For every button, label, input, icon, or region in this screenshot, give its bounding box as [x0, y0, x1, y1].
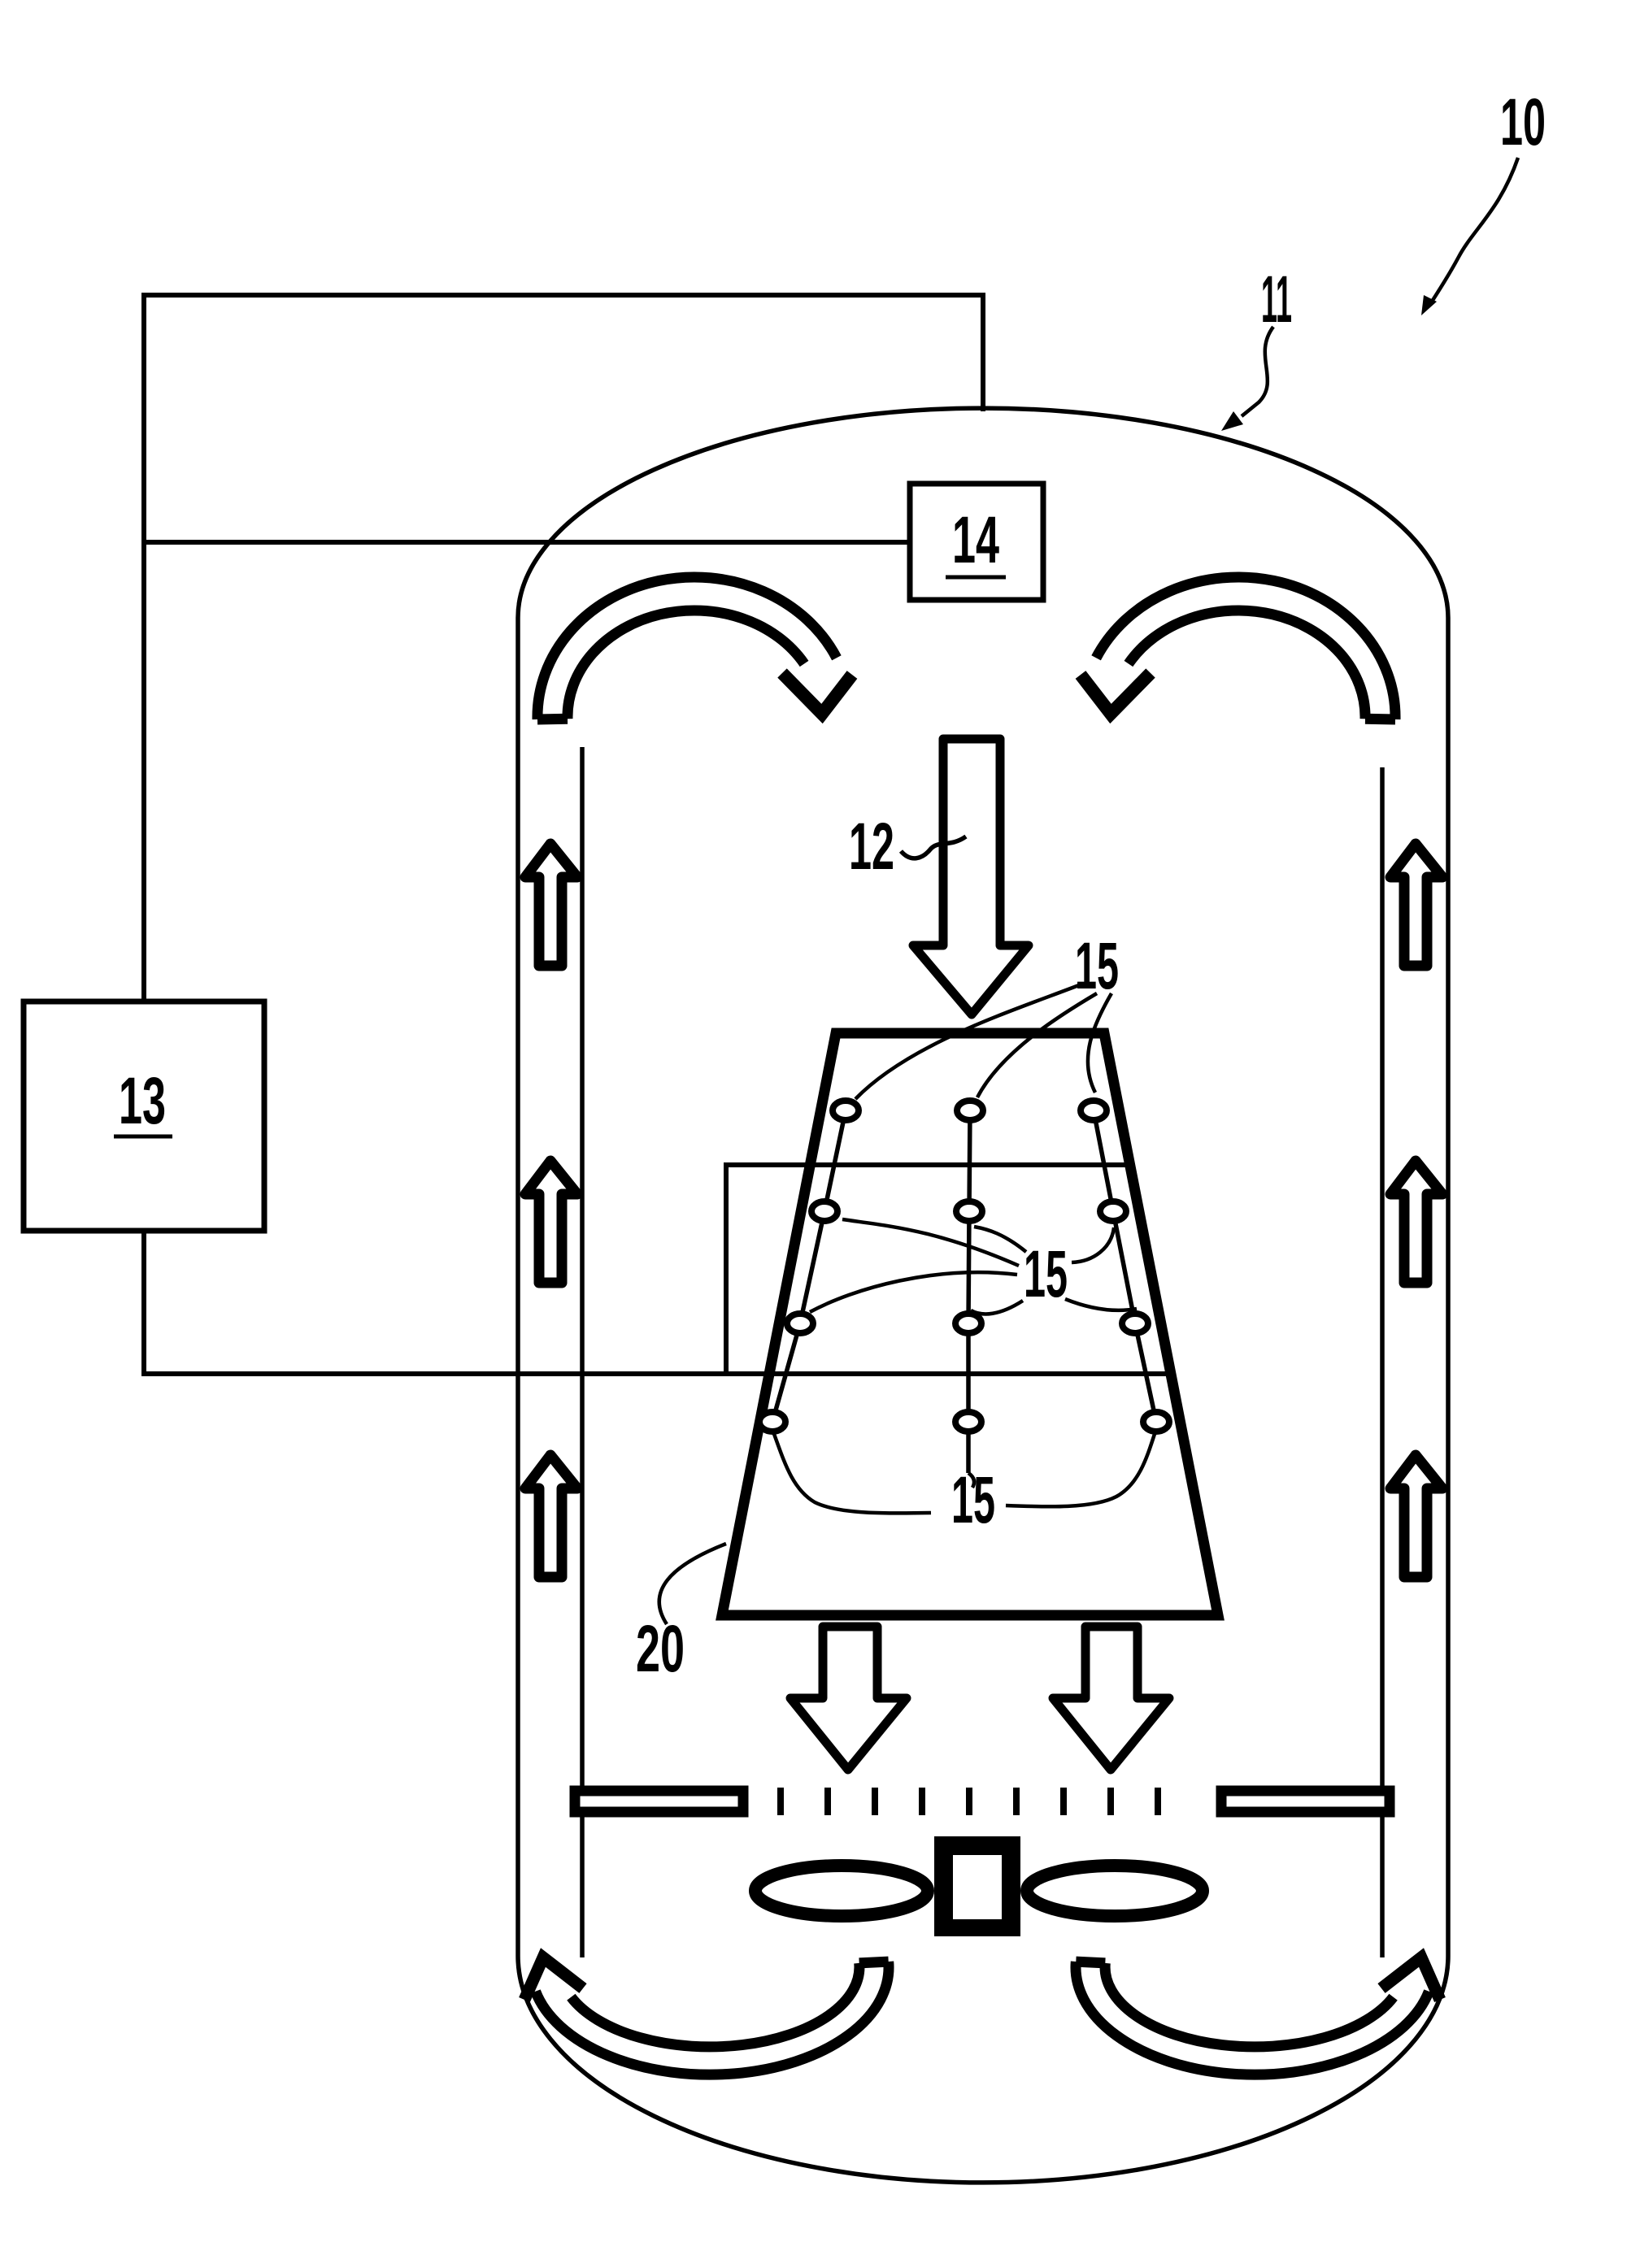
svg-text:20: 20: [636, 1612, 685, 1686]
svg-text:13: 13: [119, 1064, 166, 1138]
svg-text:11: 11: [1261, 263, 1292, 337]
svg-text:15: 15: [951, 1463, 995, 1537]
svg-text:10: 10: [1500, 85, 1546, 159]
svg-text:14: 14: [952, 503, 999, 577]
svg-text:12: 12: [849, 810, 894, 884]
svg-text:15: 15: [1024, 1237, 1068, 1311]
svg-text:15: 15: [1075, 929, 1119, 1003]
